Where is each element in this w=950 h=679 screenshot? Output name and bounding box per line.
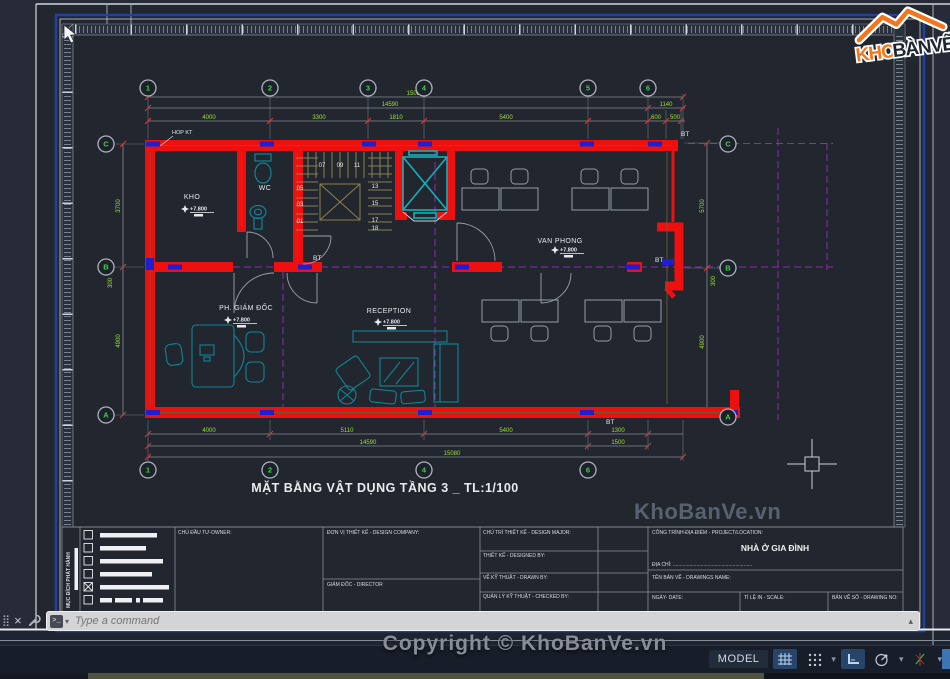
room-label-wc: WC — [259, 185, 271, 192]
svg-text:14590: 14590 — [360, 440, 377, 446]
svg-text:4900: 4900 — [700, 335, 706, 349]
wrench-icon[interactable] — [27, 613, 42, 628]
command-bar[interactable]: >_ ▾ ▴ — [46, 611, 920, 631]
svg-text:5110: 5110 — [341, 428, 355, 434]
svg-text:17: 17 — [372, 218, 379, 224]
drawn-by-label: VẼ KỸ THUẬT - DRAWN BY: — [483, 574, 548, 581]
svg-text:5700: 5700 — [700, 199, 706, 213]
svg-text:1140: 1140 — [660, 102, 674, 108]
svg-text:5400: 5400 — [499, 115, 513, 121]
svg-text:+7.800: +7.800 — [560, 248, 577, 254]
svg-text:+7.800: +7.800 — [383, 320, 400, 326]
svg-text:3300: 3300 — [312, 115, 326, 121]
project-location-label: CÔNG TRÌNH-ĐỊA ĐIỂM - PROJECT/LOCATION: — [652, 529, 763, 536]
autocad-window: 15080 14590 1140 4000 3300 1810 5400 600… — [0, 0, 950, 679]
svg-text:B: B — [103, 263, 109, 272]
svg-text:2: 2 — [268, 466, 272, 475]
svg-text:600: 600 — [651, 115, 662, 121]
svg-text:4000: 4000 — [202, 115, 216, 121]
svg-text:05: 05 — [297, 186, 304, 192]
svg-text:A: A — [103, 411, 109, 420]
svg-text:BT: BT — [681, 131, 689, 138]
svg-text:BT: BT — [655, 257, 663, 264]
svg-text:09: 09 — [337, 163, 344, 169]
svg-text:3700: 3700 — [116, 199, 122, 213]
svg-text:1810: 1810 — [389, 115, 403, 121]
svg-text:07: 07 — [319, 163, 326, 169]
svg-text:13: 13 — [372, 184, 379, 190]
command-history-up-icon[interactable]: ▴ — [908, 616, 913, 627]
plan-title: MẶT BẰNG VẬT DỤNG TẦNG 3 _ TL:1/100 — [251, 480, 519, 495]
svg-text:B: B — [725, 264, 731, 273]
svg-text:500: 500 — [670, 115, 681, 121]
copyright-text: Copyright © KhoBanVe.vn — [100, 632, 950, 656]
designed-by-label: THIẾT KẾ - DESIGNED BY: — [483, 552, 545, 559]
svg-text:5: 5 — [586, 84, 590, 93]
svg-text:1: 1 — [146, 466, 150, 475]
hopkt-label: HOP KT — [172, 130, 193, 136]
svg-text:4900: 4900 — [116, 334, 122, 348]
svg-text:A: A — [725, 413, 731, 422]
checked-by-label: QUẢN LÝ KỸ THUẬT - CHECKED BY: — [483, 593, 569, 600]
svg-text:01: 01 — [297, 219, 304, 225]
project-name: NHÀ Ở GIA ĐÌNH — [741, 542, 809, 553]
address-label: ĐỊA CHỈ: ...............................… — [652, 561, 752, 568]
room-label-vanphong: VAN PHONG — [537, 238, 582, 245]
svg-text:5400: 5400 — [499, 428, 513, 434]
command-grip-handle[interactable]: ⣿ — [2, 614, 10, 627]
svg-text:6: 6 — [586, 466, 590, 475]
svg-text:2: 2 — [268, 84, 272, 93]
svg-text:BÀNVẼ: BÀNVẼ — [891, 33, 950, 62]
svg-text:1: 1 — [146, 84, 150, 93]
room-label-reception: RECEPTION — [367, 308, 411, 315]
room-label-kho: KHO — [184, 194, 201, 201]
command-prompt-icon: >_ — [50, 615, 63, 628]
date-label: NGÀY- DATE: — [652, 594, 683, 601]
svg-text:1500: 1500 — [611, 440, 625, 446]
svg-text:300: 300 — [711, 275, 717, 286]
svg-text:BT: BT — [313, 255, 321, 262]
drawing-canvas[interactable]: 15080 14590 1140 4000 3300 1810 5400 600… — [0, 0, 950, 679]
svg-text:14590: 14590 — [382, 102, 399, 108]
svg-text:C: C — [725, 140, 731, 149]
svg-text:KHO: KHO — [855, 41, 897, 67]
purpose-title: MỤC ĐÍCH PHÁT HÀNH — [64, 552, 72, 608]
svg-text:C: C — [103, 140, 109, 149]
svg-text:15: 15 — [372, 201, 379, 207]
drawing-no-label: BẢN VẼ SỐ - DRAWING NO: — [832, 594, 898, 601]
svg-text:3: 3 — [366, 84, 370, 93]
scale-label: TỈ LỆ IN - SCALE: — [744, 593, 785, 601]
khobanve-logo: KHO BÀNVẼ — [847, 0, 950, 75]
owner-label: CHỦ ĐẦU TƯ-OWNER: — [178, 529, 232, 536]
svg-text:1300: 1300 — [611, 428, 625, 434]
design-company-label: ĐƠN VỊ THIẾT KẾ - DESIGN COMPANY: — [327, 529, 419, 536]
svg-text:+7.800: +7.800 — [190, 207, 207, 213]
svg-text:4000: 4000 — [202, 428, 216, 434]
close-icon[interactable]: × — [14, 614, 22, 627]
drawing-name-label: TÊN BẢN VẼ - DRAWINGS NAME: — [652, 573, 731, 581]
svg-text:+7.800: +7.800 — [233, 318, 250, 324]
svg-text:03: 03 — [297, 202, 304, 208]
design-major-label: CHỦ TRÌ THIẾT KẾ - DESIGN MAJOR: — [483, 529, 571, 536]
command-dropdown-caret[interactable]: ▾ — [65, 617, 69, 626]
svg-text:18: 18 — [372, 226, 379, 232]
svg-text:15080: 15080 — [444, 451, 461, 457]
command-input[interactable] — [73, 614, 908, 628]
svg-text:BT: BT — [606, 419, 614, 426]
svg-text:300: 300 — [108, 277, 114, 288]
director-label: GIÁM ĐỐC - DIRECTOR — [327, 581, 383, 588]
svg-text:11: 11 — [354, 163, 361, 169]
svg-text:6: 6 — [646, 84, 650, 93]
watermark-text: KhoBanVe.vn — [634, 499, 781, 525]
